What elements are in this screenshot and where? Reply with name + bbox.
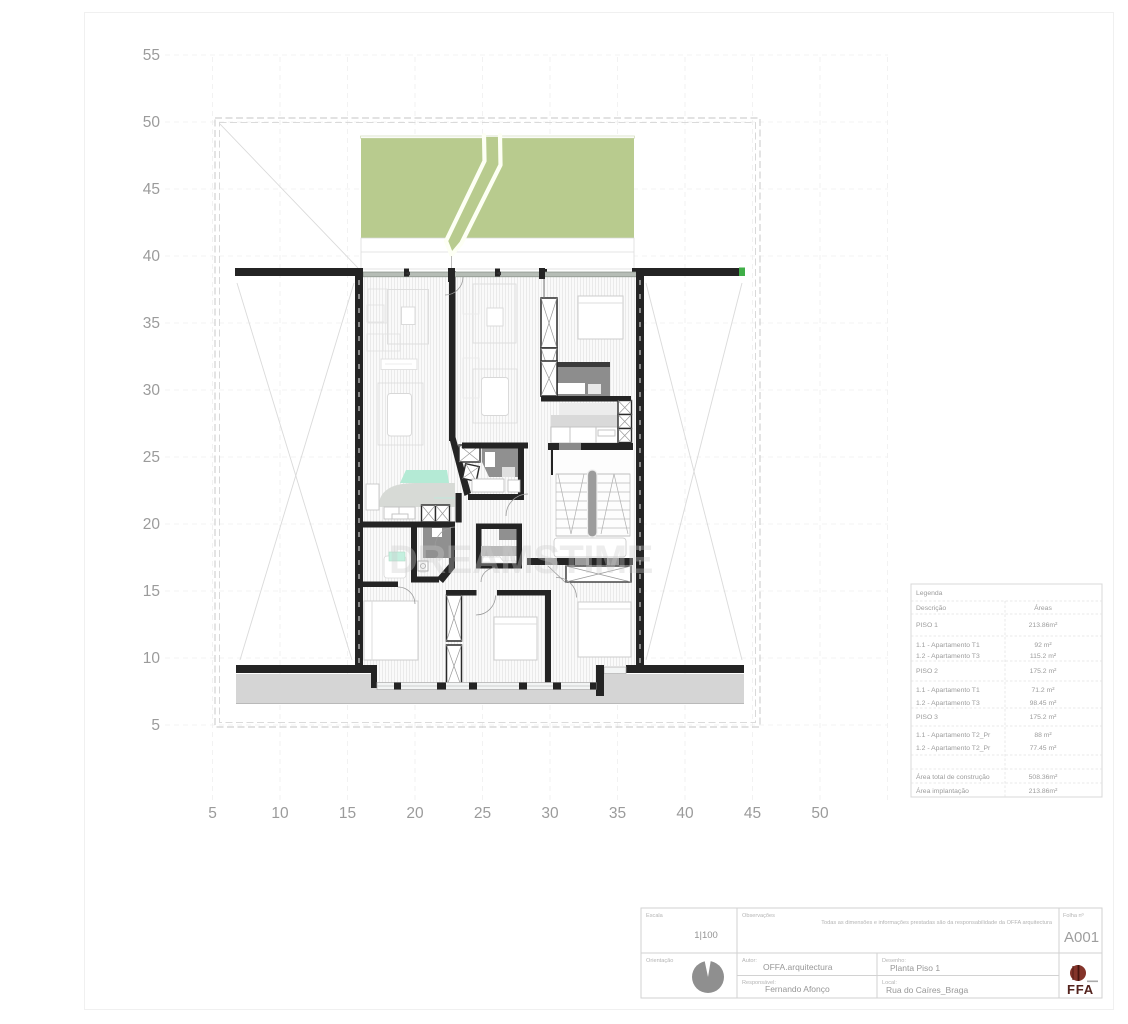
svg-text:25: 25 bbox=[474, 805, 491, 822]
svg-text:15: 15 bbox=[339, 805, 356, 822]
svg-text:40: 40 bbox=[676, 805, 694, 822]
svg-text:45: 45 bbox=[143, 181, 160, 198]
svg-text:15: 15 bbox=[143, 583, 160, 600]
svg-text:1.1 - Apartamento T2_Pr: 1.1 - Apartamento T2_Pr bbox=[916, 732, 991, 739]
svg-text:Fernando Afonço: Fernando Afonço bbox=[765, 984, 830, 994]
svg-text:Autor:: Autor: bbox=[742, 958, 757, 964]
svg-text:30: 30 bbox=[143, 382, 161, 399]
svg-text:5: 5 bbox=[208, 805, 217, 822]
svg-text:Rua do Caíres_Braga: Rua do Caíres_Braga bbox=[886, 985, 968, 995]
svg-text:50: 50 bbox=[811, 805, 829, 822]
svg-text:77.45 m²: 77.45 m² bbox=[1030, 745, 1058, 752]
svg-text:Áreas: Áreas bbox=[1034, 603, 1052, 612]
svg-text:175.2 m²: 175.2 m² bbox=[1030, 668, 1058, 675]
svg-text:45: 45 bbox=[744, 805, 761, 822]
svg-text:Orientação: Orientação bbox=[646, 958, 673, 964]
svg-text:35: 35 bbox=[609, 805, 626, 822]
svg-text:PISO 2: PISO 2 bbox=[916, 668, 938, 675]
svg-text:Área total de construção: Área total de construção bbox=[916, 772, 990, 781]
svg-text:1.2 - Apartamento T3: 1.2 - Apartamento T3 bbox=[916, 653, 980, 660]
svg-text:DREAMSTIME: DREAMSTIME bbox=[389, 538, 653, 582]
svg-text:10: 10 bbox=[143, 650, 161, 667]
svg-text:50: 50 bbox=[143, 114, 161, 131]
svg-text:Área implantação: Área implantação bbox=[916, 786, 969, 795]
svg-text:92 m²: 92 m² bbox=[1034, 642, 1052, 649]
svg-text:88 m²: 88 m² bbox=[1034, 732, 1052, 739]
svg-text:Legenda: Legenda bbox=[916, 590, 943, 597]
svg-text:213.86m²: 213.86m² bbox=[1029, 788, 1058, 795]
svg-text:Folha nº: Folha nº bbox=[1063, 912, 1084, 919]
svg-text:71.2 m²: 71.2 m² bbox=[1031, 687, 1055, 694]
svg-text:98.45 m²: 98.45 m² bbox=[1030, 700, 1058, 707]
svg-text:1.2 - Apartamento T2_Pr: 1.2 - Apartamento T2_Pr bbox=[916, 745, 991, 752]
svg-text:Todas as dimensões e informaçõ: Todas as dimensões e informações prestad… bbox=[821, 920, 1053, 926]
svg-text:PISO 1: PISO 1 bbox=[916, 622, 938, 629]
svg-text:25: 25 bbox=[143, 449, 160, 466]
svg-text:30: 30 bbox=[541, 805, 559, 822]
svg-text:5: 5 bbox=[151, 717, 160, 734]
svg-text:213.86m²: 213.86m² bbox=[1029, 622, 1058, 629]
svg-text:FFA: FFA bbox=[1067, 982, 1094, 997]
svg-text:OFFA.arquitectura: OFFA.arquitectura bbox=[763, 962, 833, 972]
svg-text:115.2 m²: 115.2 m² bbox=[1030, 653, 1057, 660]
svg-text:10: 10 bbox=[271, 805, 289, 822]
svg-text:1.1 - Apartamento T1: 1.1 - Apartamento T1 bbox=[916, 687, 980, 694]
svg-text:1.2 - Apartamento T3: 1.2 - Apartamento T3 bbox=[916, 700, 980, 707]
svg-text:1.1 - Apartamento T1: 1.1 - Apartamento T1 bbox=[916, 642, 980, 649]
svg-text:Escala: Escala bbox=[646, 913, 664, 919]
svg-text:55: 55 bbox=[143, 47, 160, 64]
svg-text:Planta Piso 1: Planta Piso 1 bbox=[890, 963, 940, 973]
svg-text:1|100: 1|100 bbox=[694, 930, 718, 941]
svg-text:508.36m²: 508.36m² bbox=[1029, 774, 1058, 781]
svg-text:PISO 3: PISO 3 bbox=[916, 714, 938, 721]
svg-text:Descrição: Descrição bbox=[916, 605, 946, 612]
svg-text:40: 40 bbox=[143, 248, 161, 265]
svg-text:175.2 m²: 175.2 m² bbox=[1030, 714, 1058, 721]
svg-text:35: 35 bbox=[143, 315, 160, 332]
svg-text:20: 20 bbox=[406, 805, 424, 822]
svg-text:A001: A001 bbox=[1064, 929, 1099, 946]
svg-text:Observações: Observações bbox=[742, 913, 775, 919]
svg-text:20: 20 bbox=[143, 516, 161, 533]
